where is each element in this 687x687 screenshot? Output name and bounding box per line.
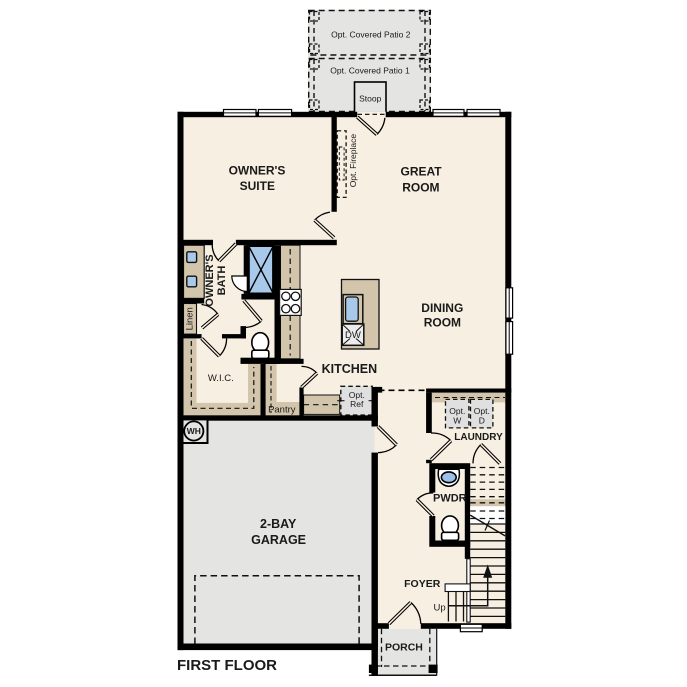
svg-text:Up: Up bbox=[434, 602, 446, 613]
svg-text:LAUNDRY: LAUNDRY bbox=[454, 432, 503, 443]
svg-text:FOYER: FOYER bbox=[404, 578, 441, 590]
svg-text:W: W bbox=[453, 416, 461, 426]
svg-text:2-BAY: 2-BAY bbox=[260, 517, 297, 531]
svg-text:Opt. Fireplace: Opt. Fireplace bbox=[348, 134, 358, 188]
svg-text:ROOM: ROOM bbox=[402, 180, 439, 194]
svg-text:Ref: Ref bbox=[350, 399, 364, 409]
svg-text:W.I.C.: W.I.C. bbox=[208, 373, 234, 384]
svg-text:Stoop: Stoop bbox=[359, 93, 381, 103]
svg-text:Opt.: Opt. bbox=[449, 406, 465, 416]
svg-text:Opt. Covered Patio 2: Opt. Covered Patio 2 bbox=[331, 30, 411, 40]
svg-text:Opt.: Opt. bbox=[474, 406, 490, 416]
svg-text:D: D bbox=[479, 416, 485, 426]
svg-text:WH: WH bbox=[187, 426, 201, 436]
svg-text:PORCH: PORCH bbox=[385, 641, 423, 653]
svg-text:DINING: DINING bbox=[421, 301, 463, 315]
svg-text:ROOM: ROOM bbox=[424, 316, 461, 330]
svg-text:KITCHEN: KITCHEN bbox=[322, 362, 378, 376]
svg-text:OWNER'S: OWNER'S bbox=[204, 254, 216, 306]
svg-text:OWNER'S: OWNER'S bbox=[229, 164, 286, 178]
svg-text:BATH: BATH bbox=[216, 266, 228, 296]
svg-text:Linen: Linen bbox=[185, 307, 196, 330]
svg-text:SUITE: SUITE bbox=[240, 179, 275, 193]
svg-text:PWDR: PWDR bbox=[433, 493, 467, 505]
svg-text:FIRST FLOOR: FIRST FLOOR bbox=[177, 657, 277, 674]
svg-text:GREAT: GREAT bbox=[401, 165, 443, 179]
svg-text:DW: DW bbox=[345, 330, 361, 341]
svg-text:GARAGE: GARAGE bbox=[251, 533, 306, 547]
svg-text:Opt. Covered Patio 1: Opt. Covered Patio 1 bbox=[330, 66, 410, 76]
svg-text:Pantry: Pantry bbox=[268, 405, 296, 416]
